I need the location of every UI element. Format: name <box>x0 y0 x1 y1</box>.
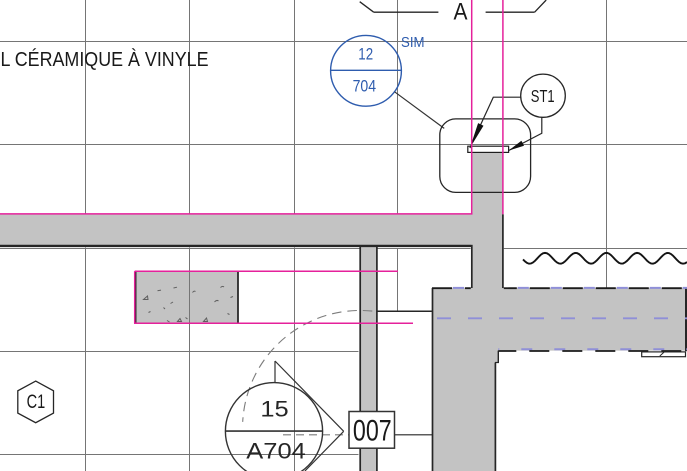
svg-text:007: 007 <box>353 415 392 448</box>
svg-text:L CÉRAMIQUE À VINYLE: L CÉRAMIQUE À VINYLE <box>1 48 209 71</box>
svg-text:A704: A704 <box>246 438 306 463</box>
svg-text:ST1: ST1 <box>531 86 555 106</box>
svg-text:704: 704 <box>353 77 377 95</box>
svg-text:15: 15 <box>260 396 288 421</box>
svg-text:A: A <box>454 0 468 25</box>
svg-text:12: 12 <box>358 45 373 63</box>
svg-text:SIM: SIM <box>401 35 425 51</box>
svg-text:C1: C1 <box>27 391 46 413</box>
